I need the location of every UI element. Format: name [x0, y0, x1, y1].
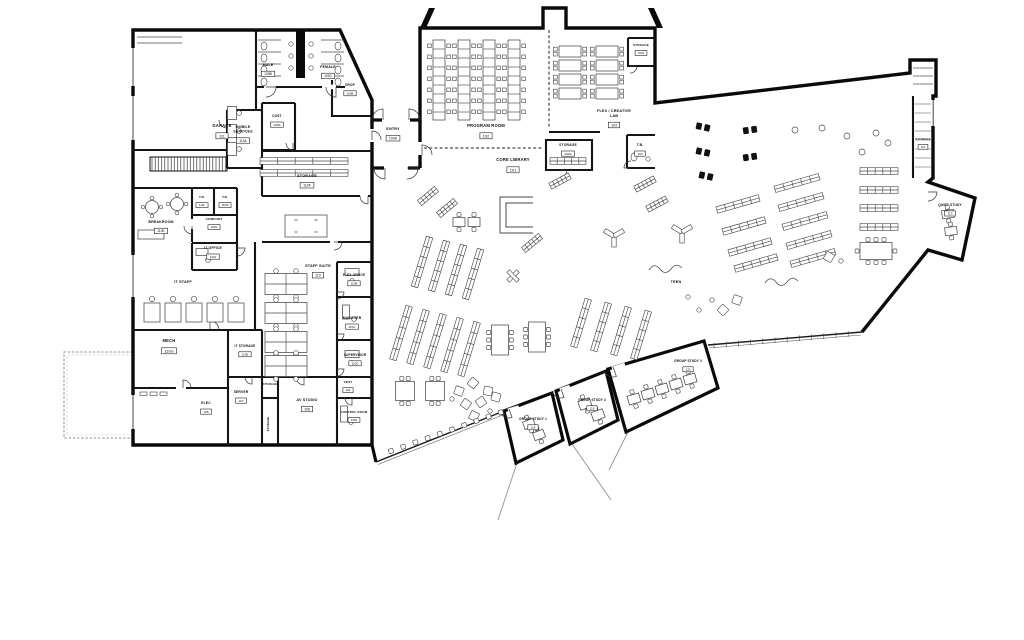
room-name-text: IT OFFICE — [204, 246, 222, 250]
room-label-storage-112: STORAGE112 — [915, 137, 930, 149]
room-name-text: FLEX / CREATIVE — [597, 109, 631, 113]
room-name-text: SUPERVISOR — [344, 353, 367, 357]
room-number-text: 110 — [315, 274, 321, 278]
room-number-text: 110F — [303, 184, 311, 188]
room-number-text: 110E — [242, 352, 249, 356]
room-number-text: 103A — [638, 51, 644, 55]
room-name-text: LAB — [610, 114, 618, 118]
room-label-mech: MECH110G — [162, 338, 177, 354]
room-label-supervisor: SUPERVISOR110D — [344, 353, 367, 366]
room-name-text: STORAGE — [263, 382, 278, 386]
room-name-text: FEMALE — [320, 65, 336, 69]
room-label-drop: DROP100B — [344, 83, 356, 96]
room-number-text: 100B — [347, 91, 354, 95]
room-number-text: 105C — [324, 74, 333, 78]
room-number-text: 110G — [164, 348, 173, 353]
room-name-text: GARAGE — [212, 123, 231, 128]
room-label-storage-107b: STORAGE — [266, 417, 270, 432]
room-label-storage-102a: STORAGE102A — [559, 143, 577, 156]
room-name-text: CORE LIBRARY — [496, 157, 530, 162]
room-number-text: 101 — [510, 167, 517, 172]
room-label-teen: TEEN — [671, 280, 682, 284]
room-label-av-studio: AV STUDIO108 — [296, 398, 317, 412]
room-number-text: 108A — [351, 418, 357, 422]
room-label-flex-creative-lab: FLEX / CREATIVELAB103 — [597, 109, 631, 128]
room-name-text: STAFF SUITE — [305, 264, 331, 268]
room-number-text: 112 — [921, 145, 926, 149]
room-number-text: 105A — [273, 123, 281, 127]
room-name-text: GROUP STUDY 3 — [674, 359, 702, 363]
room-number-text: 110M — [222, 203, 229, 207]
room-name-text: STORAGE — [559, 143, 577, 147]
room-number-text: 113 — [948, 212, 953, 216]
room-label-storage-103a: STORAGE103A — [633, 43, 649, 55]
room-label-program-room: PROGRAM ROOM102 — [467, 123, 505, 139]
room-name-text: COMFORT — [206, 217, 223, 221]
room-number-text: 110A — [239, 139, 247, 143]
room-number-text: 108 — [304, 407, 310, 411]
room-number-text: 110K — [157, 229, 165, 233]
room-number-text: 102A — [564, 152, 572, 156]
room-number-text: 100A — [389, 137, 398, 141]
room-label-storage-110f: STORAGE110F — [297, 174, 317, 188]
room-label-manager: MANAGER110C — [343, 316, 362, 329]
room-number-text: 110C — [348, 325, 356, 329]
room-name-text: STORAGE — [633, 43, 649, 47]
room-name-text: STORAGE — [915, 137, 930, 141]
room-name-text: QUIET STUDY — [938, 203, 962, 207]
interior-walls — [133, 30, 913, 445]
room-number-text: 119 — [590, 406, 595, 410]
room-number-text: 111 — [219, 133, 225, 138]
room-name-text: MECH — [163, 338, 176, 343]
room-name-text: T.B. — [637, 143, 644, 147]
room-name-text: BREAKROOM — [148, 220, 173, 224]
room-name-text: IT STAFF — [174, 280, 192, 284]
room-name-text: MALE — [263, 63, 274, 67]
room-label-tb-110l: T.B.110L — [196, 195, 208, 208]
room-name-text: STORAGE — [297, 174, 317, 178]
room-name-text: ENTRY — [386, 127, 400, 131]
room-label-tb-110m: T.B.110M — [219, 195, 231, 208]
room-name-text: PROGRAM ROOM — [467, 123, 505, 128]
room-number-text: 110J — [210, 255, 217, 259]
room-number-text: 109 — [346, 388, 351, 392]
room-name-text: SERVER — [234, 390, 249, 394]
room-name-text: SERVICES — [233, 130, 253, 134]
room-number-text: 110L — [199, 203, 205, 207]
room-number-text: 110D — [352, 361, 359, 365]
room-name-text: TEEN — [671, 280, 682, 284]
room-label-comfort: COMFORT110N — [206, 217, 223, 230]
room-number-text: 120 — [686, 367, 691, 371]
furniture — [137, 37, 958, 454]
room-number-text: 107 — [238, 399, 243, 403]
room-name-text: MANAGER — [343, 316, 362, 320]
room-label-server: SERVER107 — [234, 390, 249, 403]
room-label-group-study-3: GROUP STUDY 3120 — [674, 359, 702, 372]
room-name-text: CONTROL ROOM — [341, 410, 368, 414]
room-name-text: CUST — [272, 114, 283, 118]
room-label-female: FEMALE105C — [320, 65, 336, 79]
room-name-text: IT STORAGE — [235, 344, 256, 348]
room-label-storage-107a: STORAGE — [263, 382, 278, 386]
room-name-text: T.B. — [222, 195, 228, 199]
room-number-text: 110N — [211, 225, 217, 229]
room-number-text: 106 — [203, 410, 208, 414]
room-label-it-storage: IT STORAGE110E — [235, 344, 256, 357]
room-label-elec: ELEC106 — [201, 401, 212, 414]
room-number-text: 104 — [637, 152, 642, 156]
room-name-text: T.B. — [199, 195, 205, 199]
room-name-text: GROUP STUDY 1 — [519, 417, 547, 421]
room-number-text: 118 — [531, 425, 536, 429]
room-name-text: GROUP STUDY 2 — [578, 398, 606, 402]
room-name-text: STORAGE — [266, 417, 270, 432]
room-name-text: MOBILE — [236, 125, 251, 129]
room-number-text: 105B — [264, 72, 273, 76]
room-name-text: DROP — [345, 83, 356, 87]
room-label-tb-104: T.B.104 — [635, 143, 646, 156]
room-label-vest: VEST109 — [343, 380, 353, 393]
room-label-it-staff: IT STAFF — [174, 280, 192, 284]
room-label-staff-suite: STAFF SUITE110 — [305, 264, 331, 278]
room-label-entry: ENTRY100A — [386, 127, 400, 141]
floor-plan-canvas: GARAGE111MALE105BFEMALE105CDROP100BCUST1… — [0, 0, 1024, 640]
floor-plan: GARAGE111MALE105BFEMALE105CDROP100BCUST1… — [0, 0, 1024, 640]
room-number-text: 103 — [611, 123, 617, 127]
room-name-text: ELEC — [201, 401, 211, 405]
room-name-text: VEST — [344, 380, 353, 384]
room-label-cust: CUST105A — [271, 114, 284, 127]
room-number-text: 110B — [351, 281, 358, 285]
room-label-core-library: CORE LIBRARY101 — [496, 157, 530, 173]
room-number-text: 102 — [483, 133, 490, 138]
room-name-text: AV STUDIO — [296, 398, 317, 402]
room-name-text: FLEX OFFICE — [343, 273, 365, 277]
